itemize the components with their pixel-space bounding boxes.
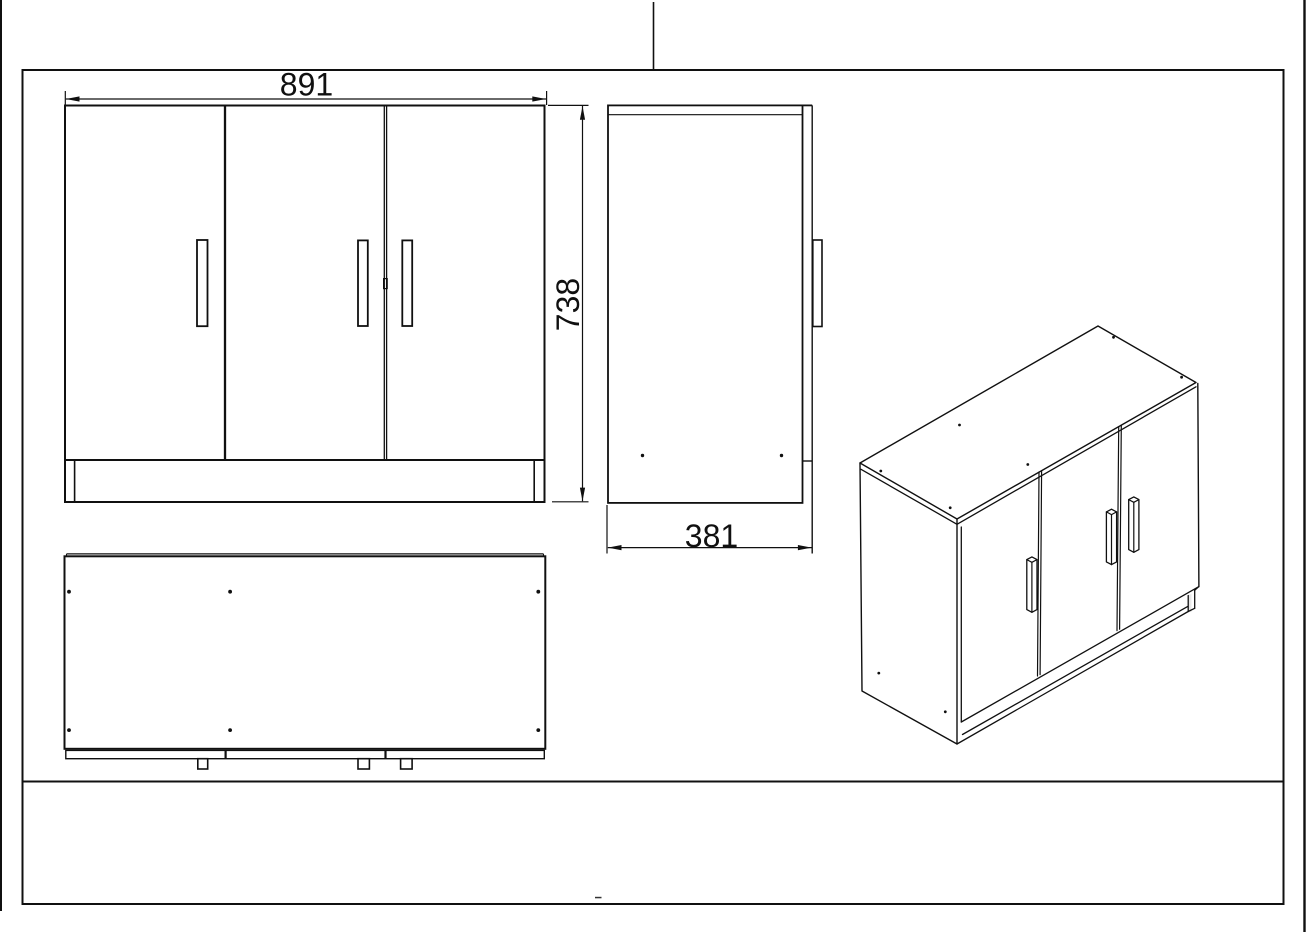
svg-text:891: 891 (280, 67, 333, 103)
svg-text:738: 738 (550, 278, 586, 331)
svg-text:381: 381 (685, 518, 738, 554)
